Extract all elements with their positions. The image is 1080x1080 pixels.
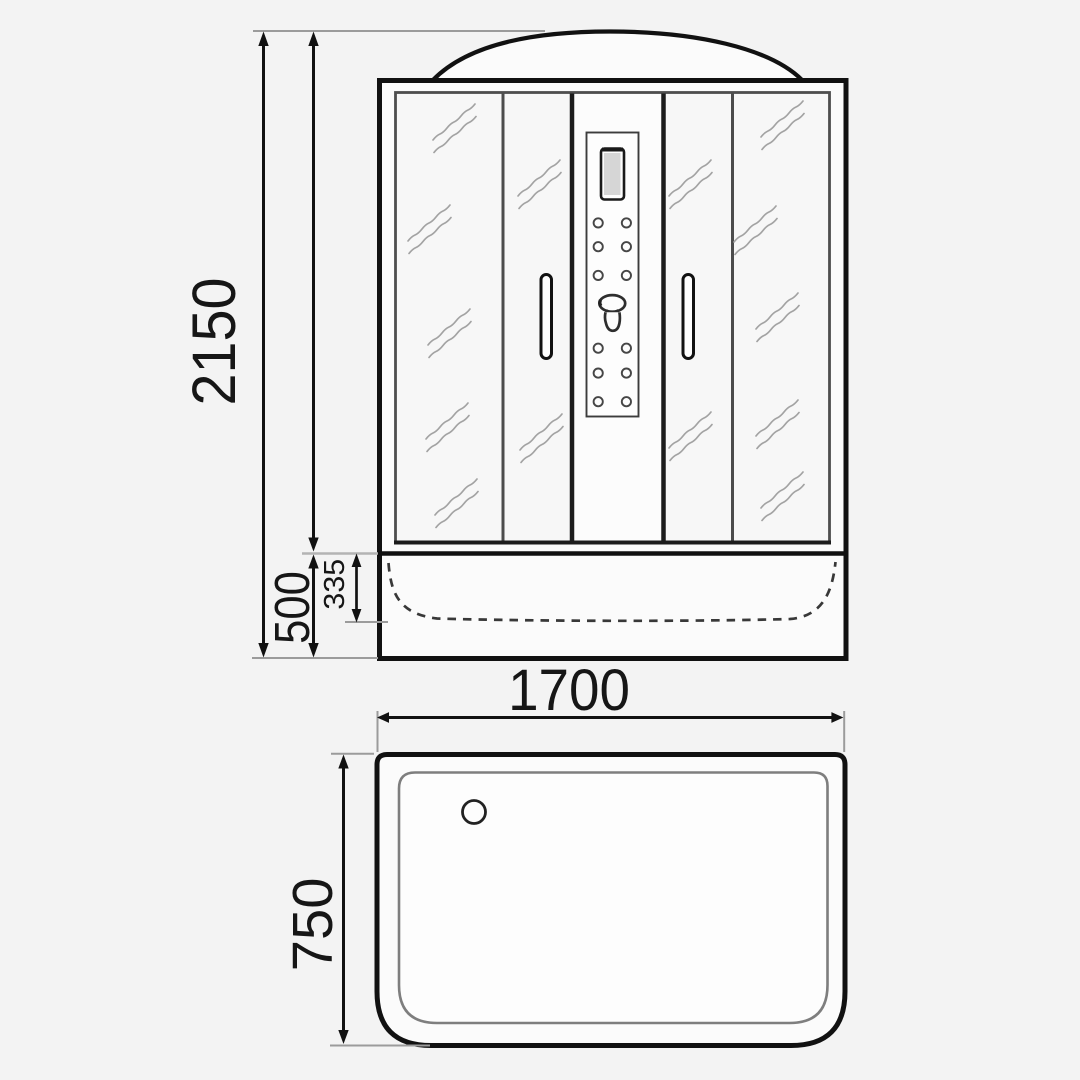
svg-text:335: 335 [319,559,351,610]
svg-text:500: 500 [265,571,320,644]
svg-text:750: 750 [281,878,344,972]
svg-text:2150: 2150 [179,278,248,406]
svg-text:1700: 1700 [508,658,630,723]
